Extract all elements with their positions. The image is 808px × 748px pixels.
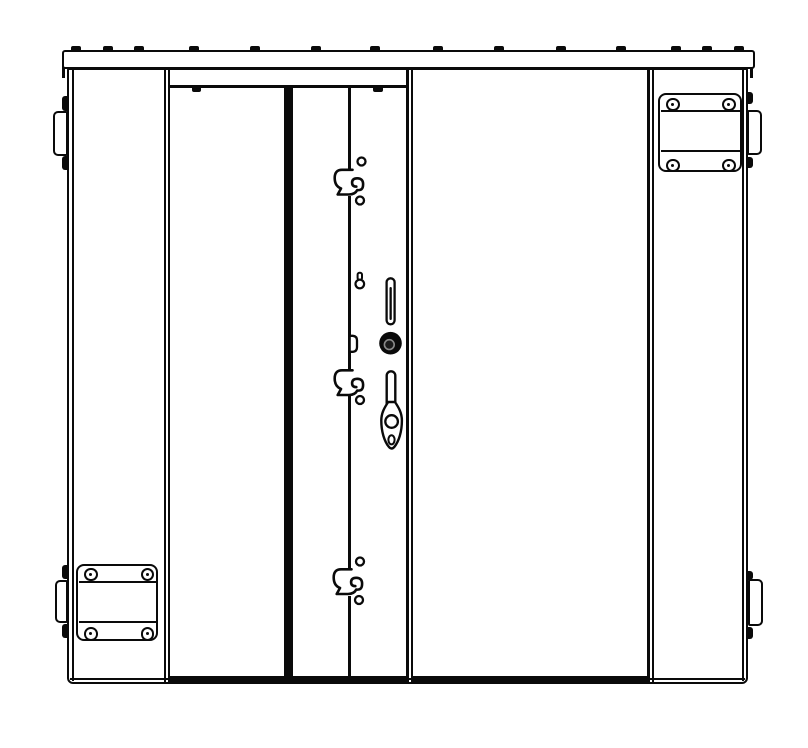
side-tab-nub: [62, 156, 69, 170]
plate-screw: [84, 568, 98, 582]
channel-notch-icon: [351, 336, 357, 352]
door-gap-line: [284, 87, 293, 684]
latch-hook-middle-icon: [335, 370, 364, 404]
side-tab-nub: [62, 96, 69, 111]
right-divider-line: [647, 69, 649, 682]
plate-screw: [141, 627, 155, 641]
latch-hook-top-icon: [335, 158, 366, 205]
plate-rib-line: [79, 621, 156, 623]
side-tab-nub: [62, 565, 68, 579]
door-sill-bar: [413, 676, 648, 684]
side-tab-nub: [747, 157, 754, 168]
plate-screw: [722, 159, 736, 173]
door-sill-bar: [170, 676, 284, 684]
plate-screw: [84, 627, 98, 641]
top-rail: [62, 50, 755, 69]
plate-rib-line: [661, 150, 740, 152]
header-weld-nub: [192, 88, 201, 92]
side-tab-right-bottom: [748, 579, 763, 626]
door-sill-bar: [293, 676, 407, 684]
latch-hardware: [325, 148, 407, 613]
left-divider-line: [164, 69, 166, 682]
left-divider-line: [168, 69, 170, 682]
swing-handle-icon: [381, 371, 402, 448]
lock-cylinder-icon: [379, 332, 402, 355]
side-tab-left-top: [53, 111, 68, 156]
plate-screw: [666, 98, 680, 112]
latch-hook-bottom-icon: [334, 558, 364, 605]
plate-screw: [722, 98, 736, 112]
latch-strip-edge-line: [411, 69, 413, 682]
vertical-slot-icon: [387, 278, 395, 324]
side-tab-nub: [747, 627, 753, 639]
left-edge-inner-line: [72, 70, 74, 681]
enclosure-front-drawing: [0, 0, 808, 748]
right-divider-line: [652, 69, 654, 682]
keyhole-cutout-icon: [356, 273, 365, 289]
side-tab-left-bottom: [55, 580, 69, 623]
side-tab-nub: [747, 92, 754, 104]
header-weld-nub: [373, 88, 383, 92]
plate-screw: [666, 159, 680, 173]
side-tab-nub: [62, 624, 68, 638]
side-tab-right-top: [747, 110, 762, 155]
